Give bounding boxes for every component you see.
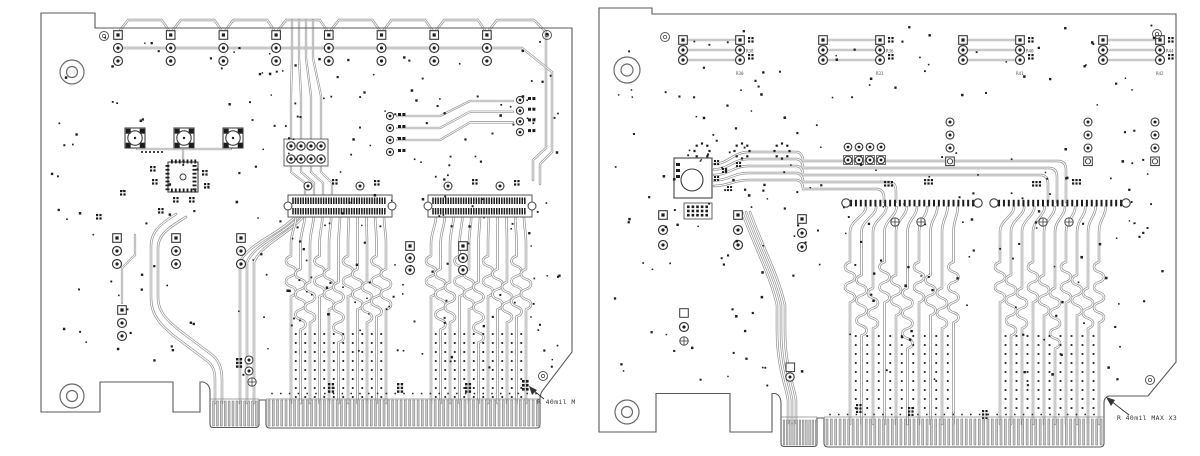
pcb-board-right: R38R30R36R31R40R41R44R42 (599, 8, 1176, 447)
ref-designator: R30 (736, 71, 744, 76)
ref-designator: R31 (876, 71, 884, 76)
board-outline (41, 13, 572, 428)
ref-designator: R36 (886, 49, 894, 54)
annotation-left: R 40mil M (529, 386, 576, 406)
pcb-plot-canvas: R38R30R36R31R40R41R44R42 R 40mil M R 40m… (0, 0, 1200, 456)
annotation-left-text: R 40mil M (537, 398, 576, 406)
ref-designator: R41 (1016, 71, 1024, 76)
ref-designator: R44 (1166, 49, 1174, 54)
annotation-right-text: R 40mil MAX X3 (1117, 414, 1177, 422)
annotation-right-arrowhead (1106, 397, 1115, 406)
ref-designator: R40 (1026, 49, 1034, 54)
pcb-plot: R38R30R36R31R40R41R44R42 R 40mil M R 40m… (0, 0, 1200, 456)
ref-designator: R42 (1156, 71, 1164, 76)
traces (688, 40, 1155, 424)
annotation-right-arrow (1111, 401, 1129, 415)
ref-designator: R38 (746, 49, 754, 54)
pcb-board-left (41, 13, 572, 428)
annotation-right: R 40mil MAX X3 (1106, 397, 1177, 422)
edge-fingers (213, 400, 539, 426)
